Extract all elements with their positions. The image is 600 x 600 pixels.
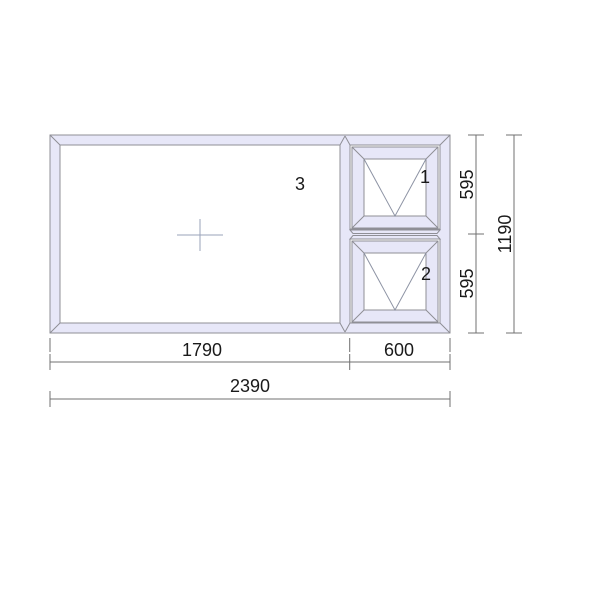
window-technical-drawing: 3 1 2 1790 600 2390 595 595 1190 <box>0 0 600 600</box>
dimension-line-heights <box>468 135 484 333</box>
dimension-width-total: 2390 <box>230 376 270 396</box>
dimension-width-right: 600 <box>384 340 414 360</box>
transom-upper-profile <box>350 230 440 234</box>
bottom-dimensions: 1790 600 2390 <box>50 338 450 407</box>
right-dimensions: 595 595 1190 <box>457 135 522 333</box>
drawing-canvas: 3 1 2 1790 600 2390 595 595 1190 <box>0 0 600 600</box>
dimension-height-bottom: 595 <box>457 268 477 298</box>
top-sash <box>352 147 438 228</box>
top-sash-glass <box>364 159 426 216</box>
bottom-sash-glass <box>364 253 426 310</box>
bottom-sash-label: 2 <box>421 264 431 284</box>
dimension-width-left: 1790 <box>182 340 222 360</box>
transom-lower-profile <box>350 236 440 240</box>
fixed-pane-label: 3 <box>295 174 305 194</box>
dimension-height-top: 595 <box>457 169 477 199</box>
dimension-height-total: 1190 <box>495 215 515 254</box>
top-sash-label: 1 <box>420 167 430 187</box>
